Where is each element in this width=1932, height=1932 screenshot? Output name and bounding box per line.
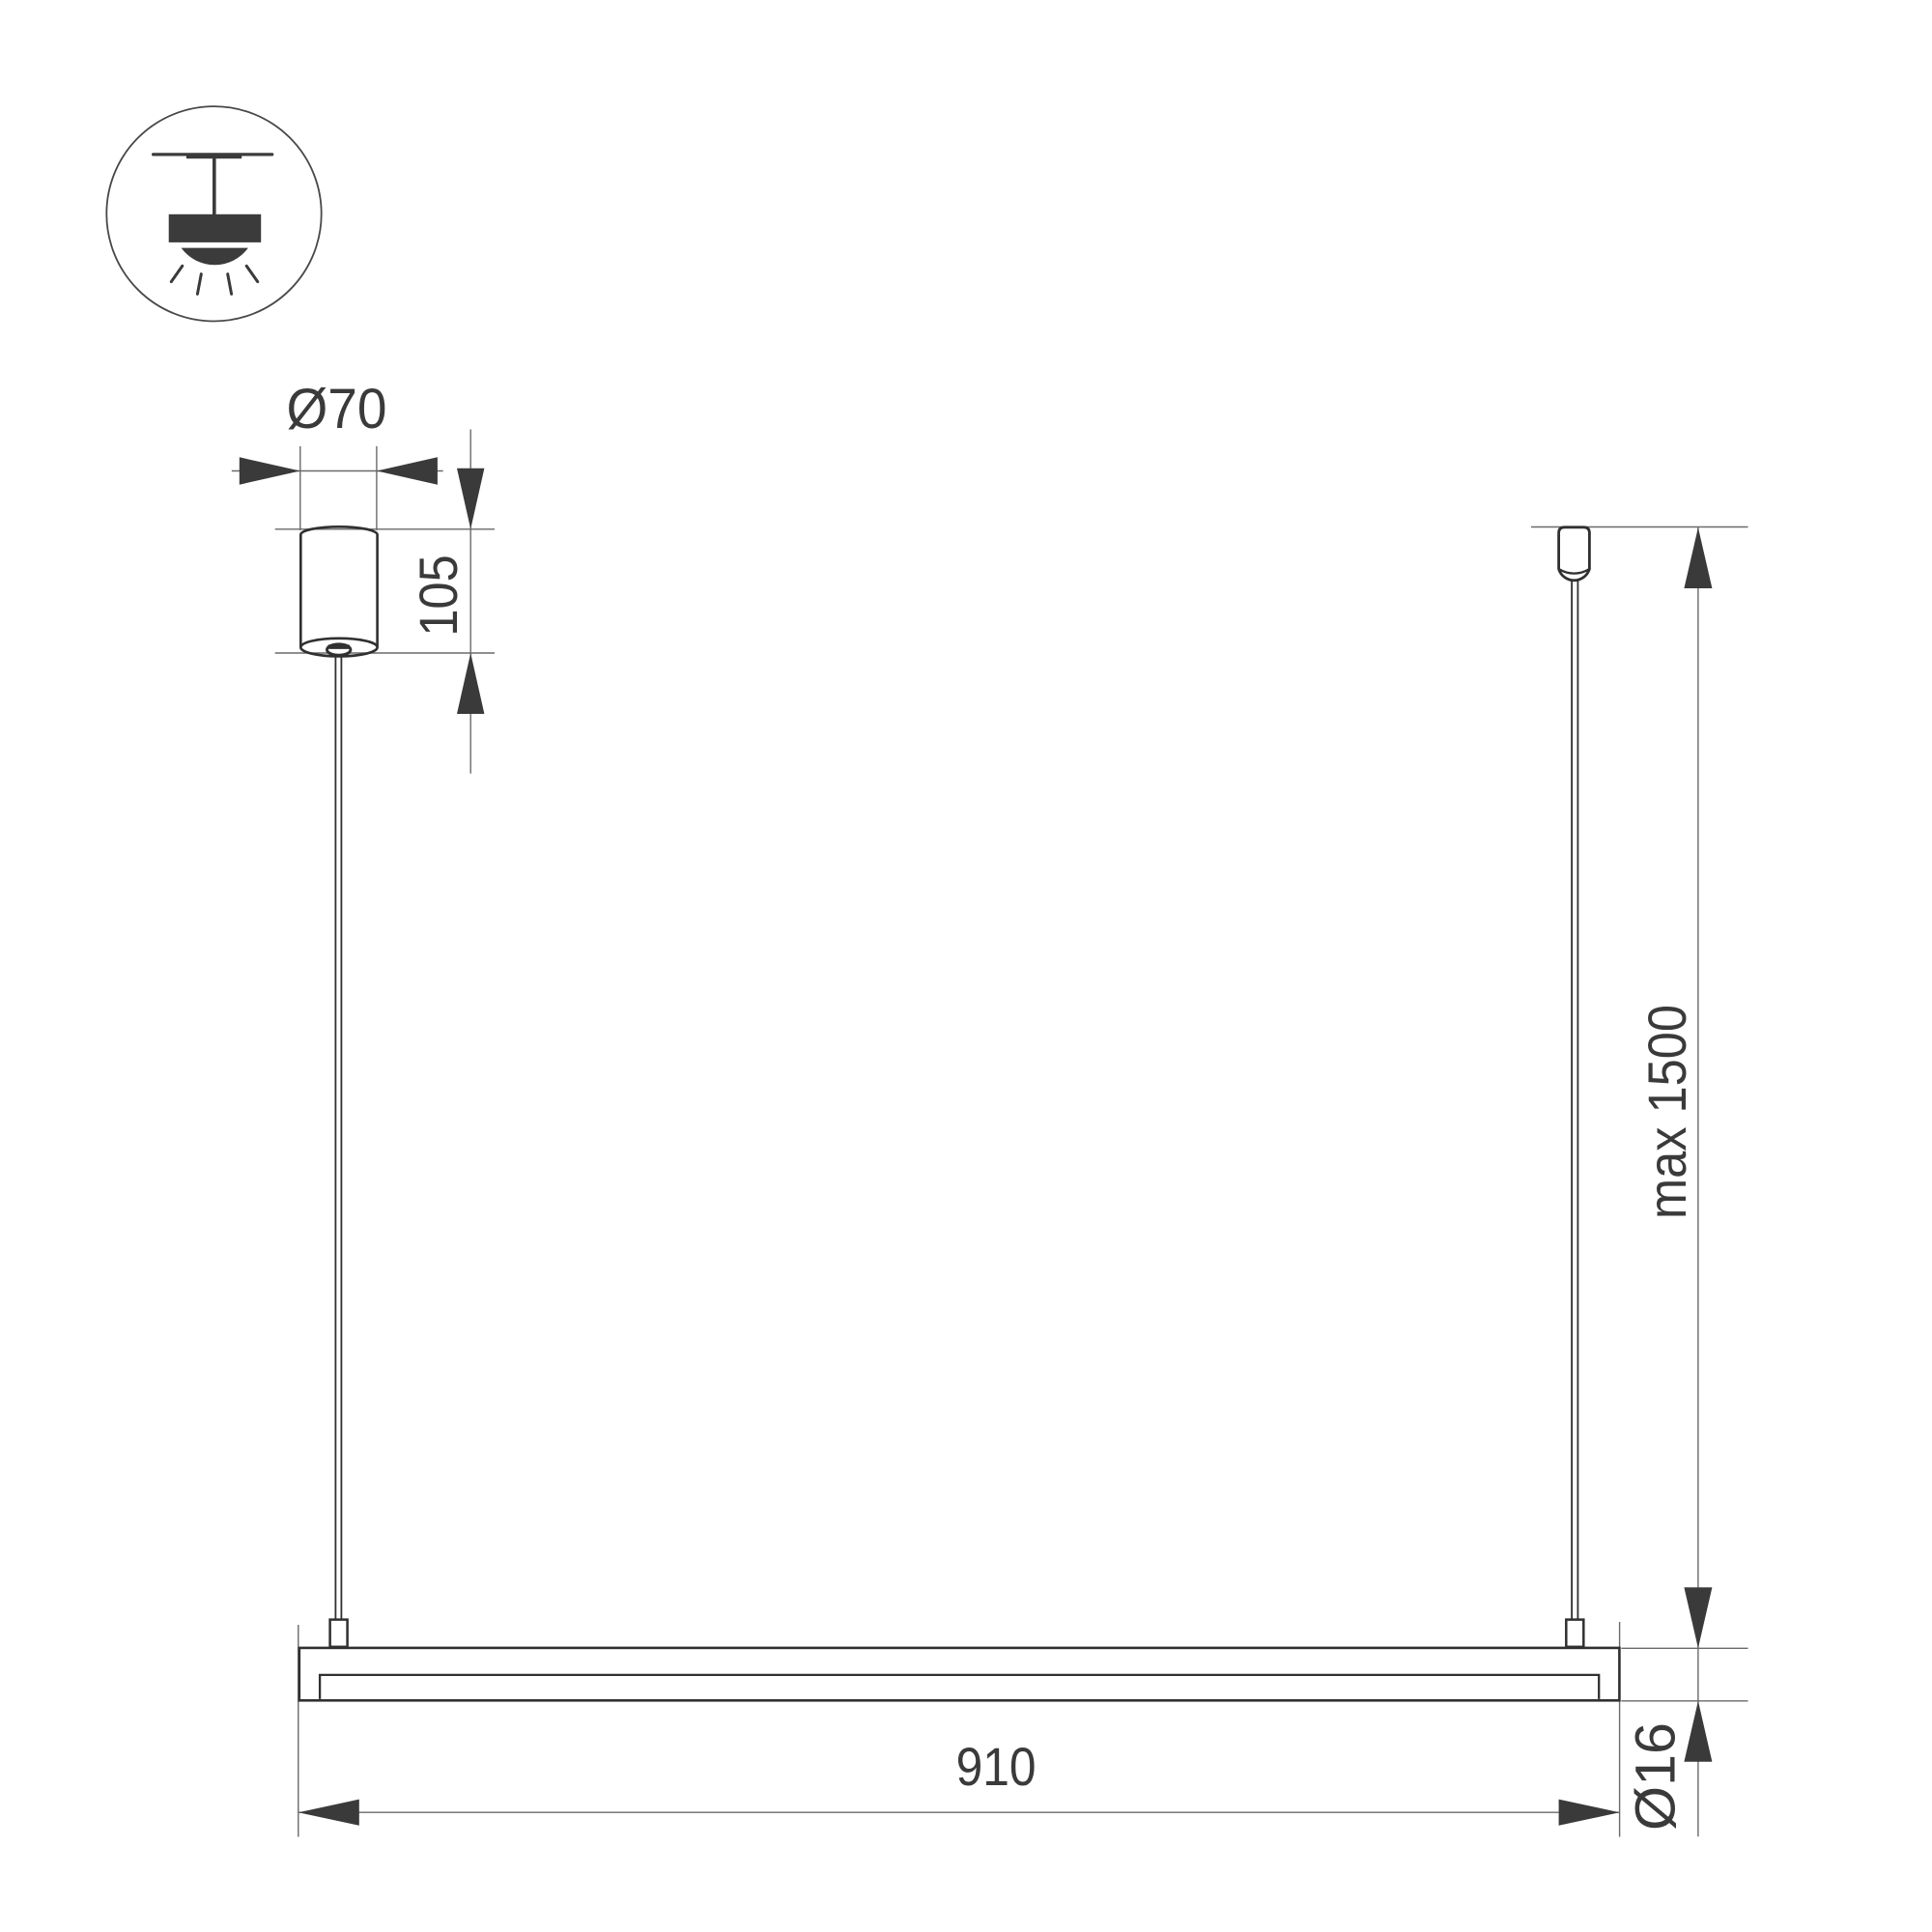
svg-text:Ø16: Ø16 — [1625, 1722, 1688, 1831]
svg-text:910: 910 — [956, 1736, 1037, 1797]
svg-text:105: 105 — [408, 554, 469, 637]
svg-text:Ø70: Ø70 — [287, 378, 387, 440]
svg-text:max 1500: max 1500 — [1636, 1005, 1697, 1219]
